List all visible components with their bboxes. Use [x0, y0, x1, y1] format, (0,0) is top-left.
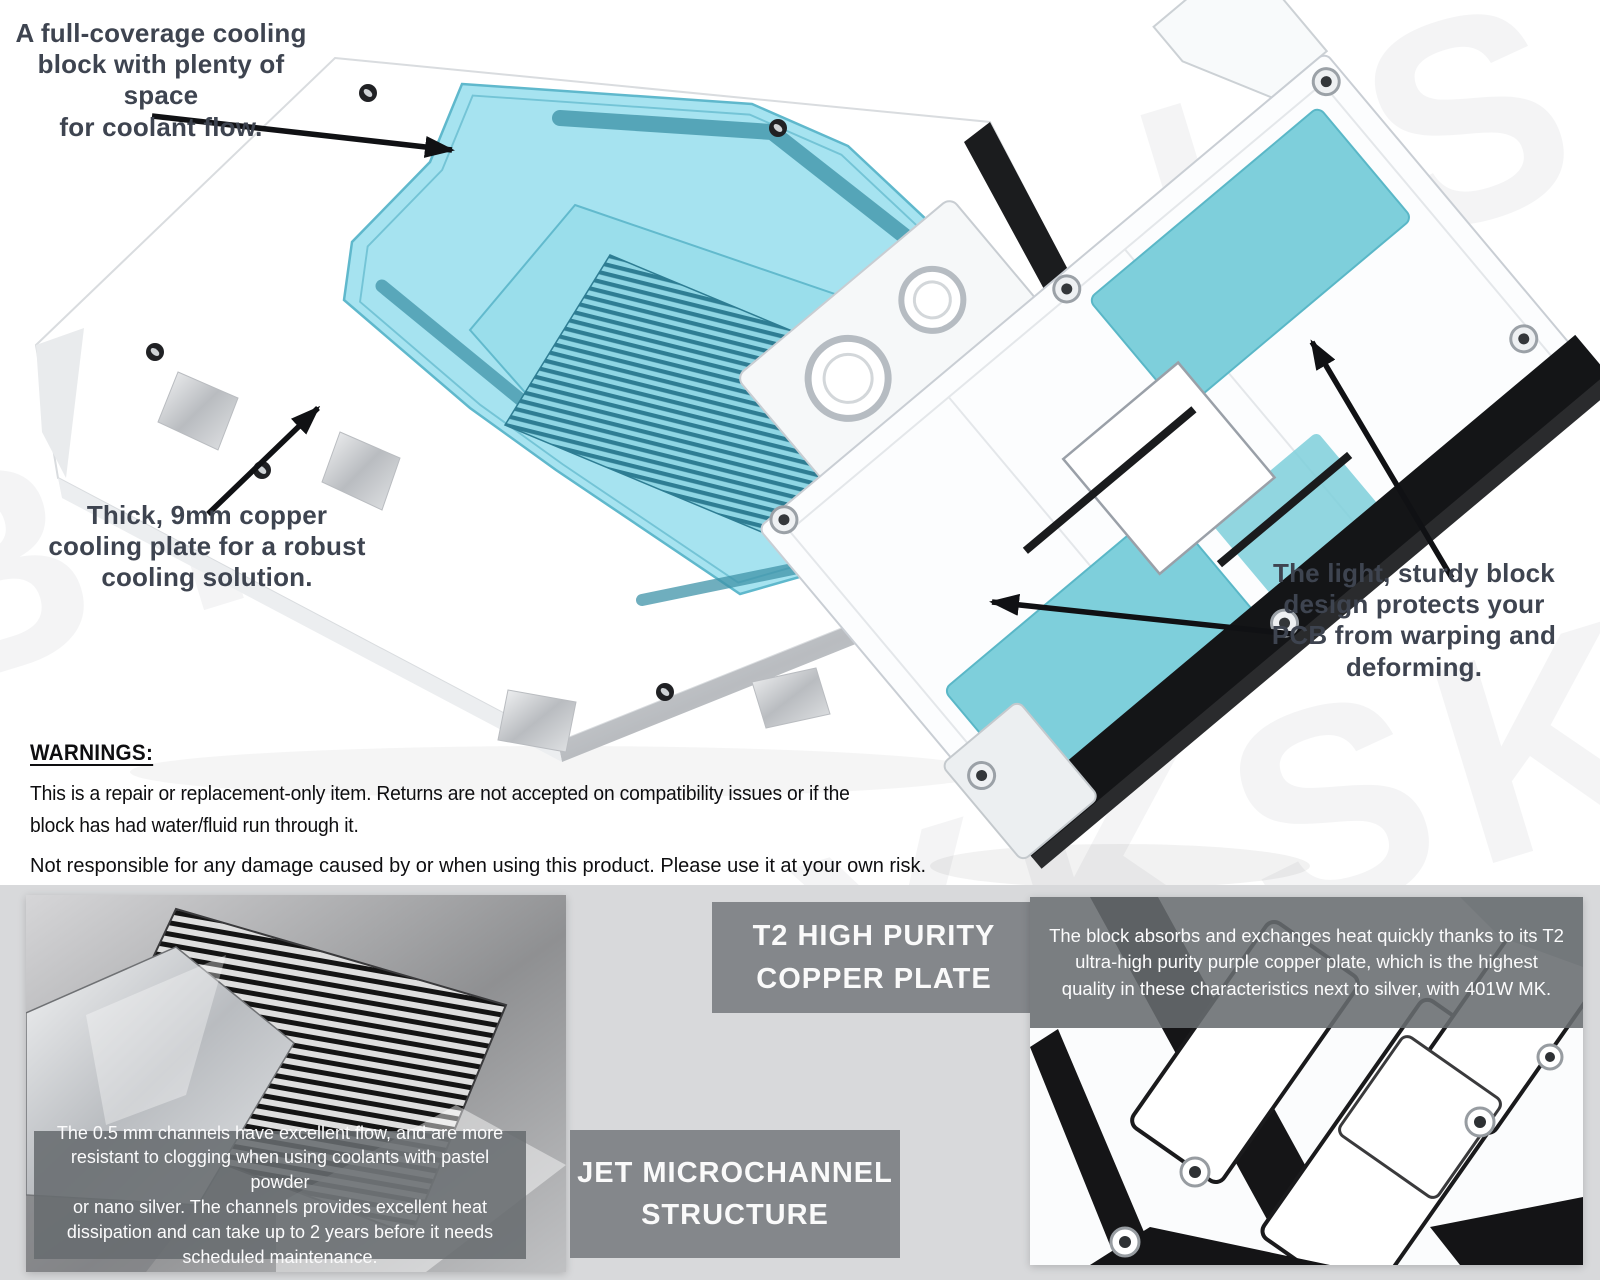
product-infographic: BYKSKI.US BYKSKI.US — [0, 0, 1600, 1280]
banner-jet-microchannel: JET MICROCHANNEL STRUCTURE — [570, 1130, 900, 1258]
banner-t2-copper: T2 HIGH PURITY COPPER PLATE — [712, 902, 1036, 1013]
warnings-section: WARNINGS: This is a repair or replacemen… — [30, 740, 1000, 880]
feature-strip: The 0.5 mm channels have excellent flow,… — [0, 885, 1600, 1280]
microchannel-description-panel: The 0.5 mm channels have excellent flow,… — [34, 1131, 526, 1259]
copper-plate-description-panel: The block absorbs and exchanges heat qui… — [1030, 897, 1583, 1028]
warnings-paragraph-1: This is a repair or replacement-only ite… — [30, 778, 942, 842]
warnings-paragraph-2: Not responsible for any damage caused by… — [30, 852, 1000, 880]
annotation-pcb-protection: The light, sturdy block design protects … — [1258, 558, 1570, 683]
microchannel-description: The 0.5 mm channels have excellent flow,… — [34, 1121, 526, 1270]
photo-copper-plate: The block absorbs and exchanges heat qui… — [1030, 897, 1583, 1265]
banner-jet-label: JET MICROCHANNEL STRUCTURE — [577, 1152, 893, 1236]
annotation-copper-plate: Thick, 9mm copper cooling plate for a ro… — [42, 500, 372, 594]
banner-t2-label: T2 HIGH PURITY COPPER PLATE — [753, 915, 996, 999]
copper-plate-description: The block absorbs and exchanges heat qui… — [1039, 923, 1574, 1002]
warnings-title: WARNINGS: — [30, 740, 942, 766]
annotation-coolant-flow: A full-coverage cooling block with plent… — [0, 18, 322, 143]
